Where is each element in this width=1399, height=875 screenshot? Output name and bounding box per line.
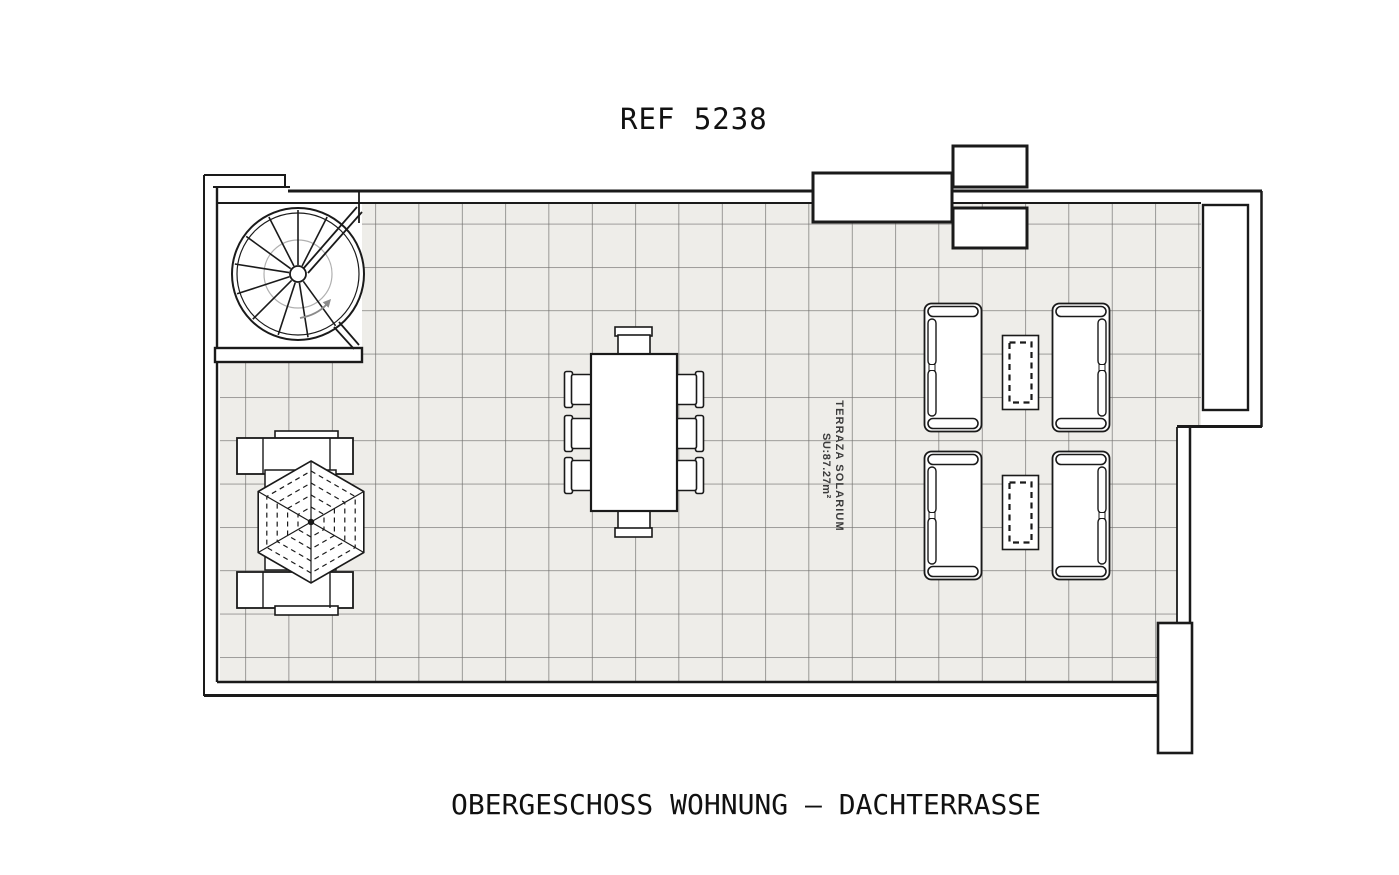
- terrace-area-label-name: TERRAZA SOLARIUM: [832, 391, 845, 541]
- sun-lounger: [1053, 304, 1110, 432]
- plan-reference-title: REF 5238: [620, 102, 768, 136]
- rooftop-box-lower: [953, 208, 1027, 248]
- wall-planter: [1203, 205, 1248, 410]
- floor-plan-page: REF 5238 TERRAZA SOLARIUM SU:87.27m² OBE…: [0, 0, 1399, 875]
- dining-table: [591, 354, 677, 511]
- stair-center-post: [290, 266, 306, 282]
- terrace-area-label: TERRAZA SOLARIUM SU:87.27m²: [817, 391, 845, 541]
- rooftop-box-wide: [813, 173, 952, 222]
- side-table: [1003, 476, 1039, 550]
- tiled-terrace-floor: [220, 203, 1201, 682]
- sun-lounger: [925, 304, 982, 432]
- terrace-area-label-size: SU:87.27m²: [819, 391, 832, 541]
- sun-lounger: [925, 452, 982, 580]
- stair-lower-wall: [215, 348, 362, 362]
- side-table: [1003, 336, 1039, 410]
- plan-captions: OBERGESCHOSS WOHNUNG – DACHTERRASSE UPPE…: [451, 721, 1058, 875]
- caption-german: OBERGESCHOSS WOHNUNG – DACHTERRASSE: [451, 788, 1058, 822]
- rooftop-box-upper: [953, 146, 1027, 187]
- sun-lounger: [1053, 452, 1110, 580]
- exterior-pillar: [1158, 623, 1192, 753]
